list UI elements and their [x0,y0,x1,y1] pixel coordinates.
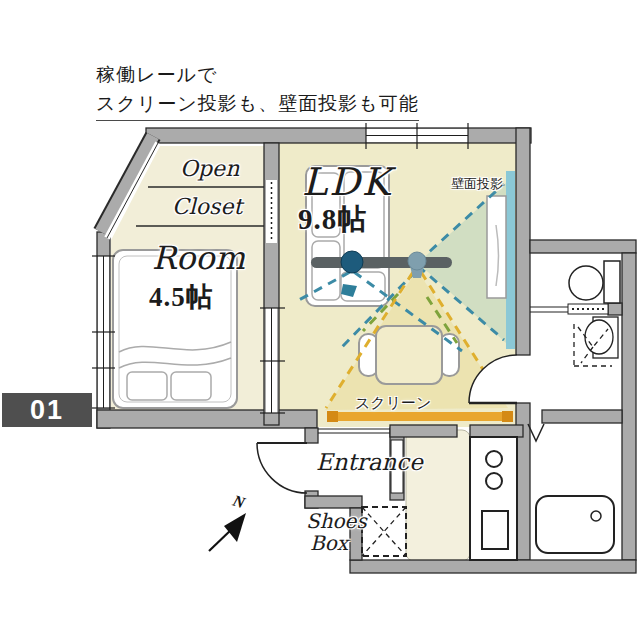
wall-projection-strip [506,171,515,349]
shoes-box-label-line2: Box [310,533,348,553]
caption-line2: スクリーン投影も、壁面投影も可能 [96,93,419,121]
ldk-size-label: 9.8帖 [298,205,367,234]
screen-label: スクリーン [355,396,431,411]
projector-ghost-icon [408,252,426,270]
wall-projection-label: 壁面投影 [451,177,503,190]
toilet-slider [530,304,608,314]
projector-icon [341,251,363,273]
kitchen-sink [482,511,508,549]
room-name-label: Room [152,242,245,274]
bathtub-icon [536,496,614,553]
caption-line1: 稼働レールで [96,64,217,87]
compass-north-icon [209,513,246,551]
shoes-box-label-line1: Shoes [306,511,367,531]
unit-number-badge: 01 [2,393,92,427]
kitchen-counter [470,437,517,560]
floor-plan: 稼働レールで スクリーン投影も、壁面投影も可能 Open Closet LDK … [0,0,640,640]
dining-set [359,326,459,384]
room-size-label: 4.5帖 [149,284,214,311]
dining-table [376,326,442,384]
shoes-box-icon [362,507,406,556]
open-closet-label-line1: Open [180,158,239,180]
pillow [171,372,211,400]
stove-burner [486,473,502,489]
stove-burner [486,451,502,467]
open-closet-label-line2: Closet [172,196,242,218]
pillow [127,372,167,400]
entrance-label: Entrance [316,451,423,474]
wall-panel [487,196,506,298]
projection-screen-bar [327,411,513,422]
front-door [257,443,307,493]
ldk-name-label: LDK [302,163,392,201]
front-door-arc [257,443,307,493]
toilet-icon [569,261,620,303]
